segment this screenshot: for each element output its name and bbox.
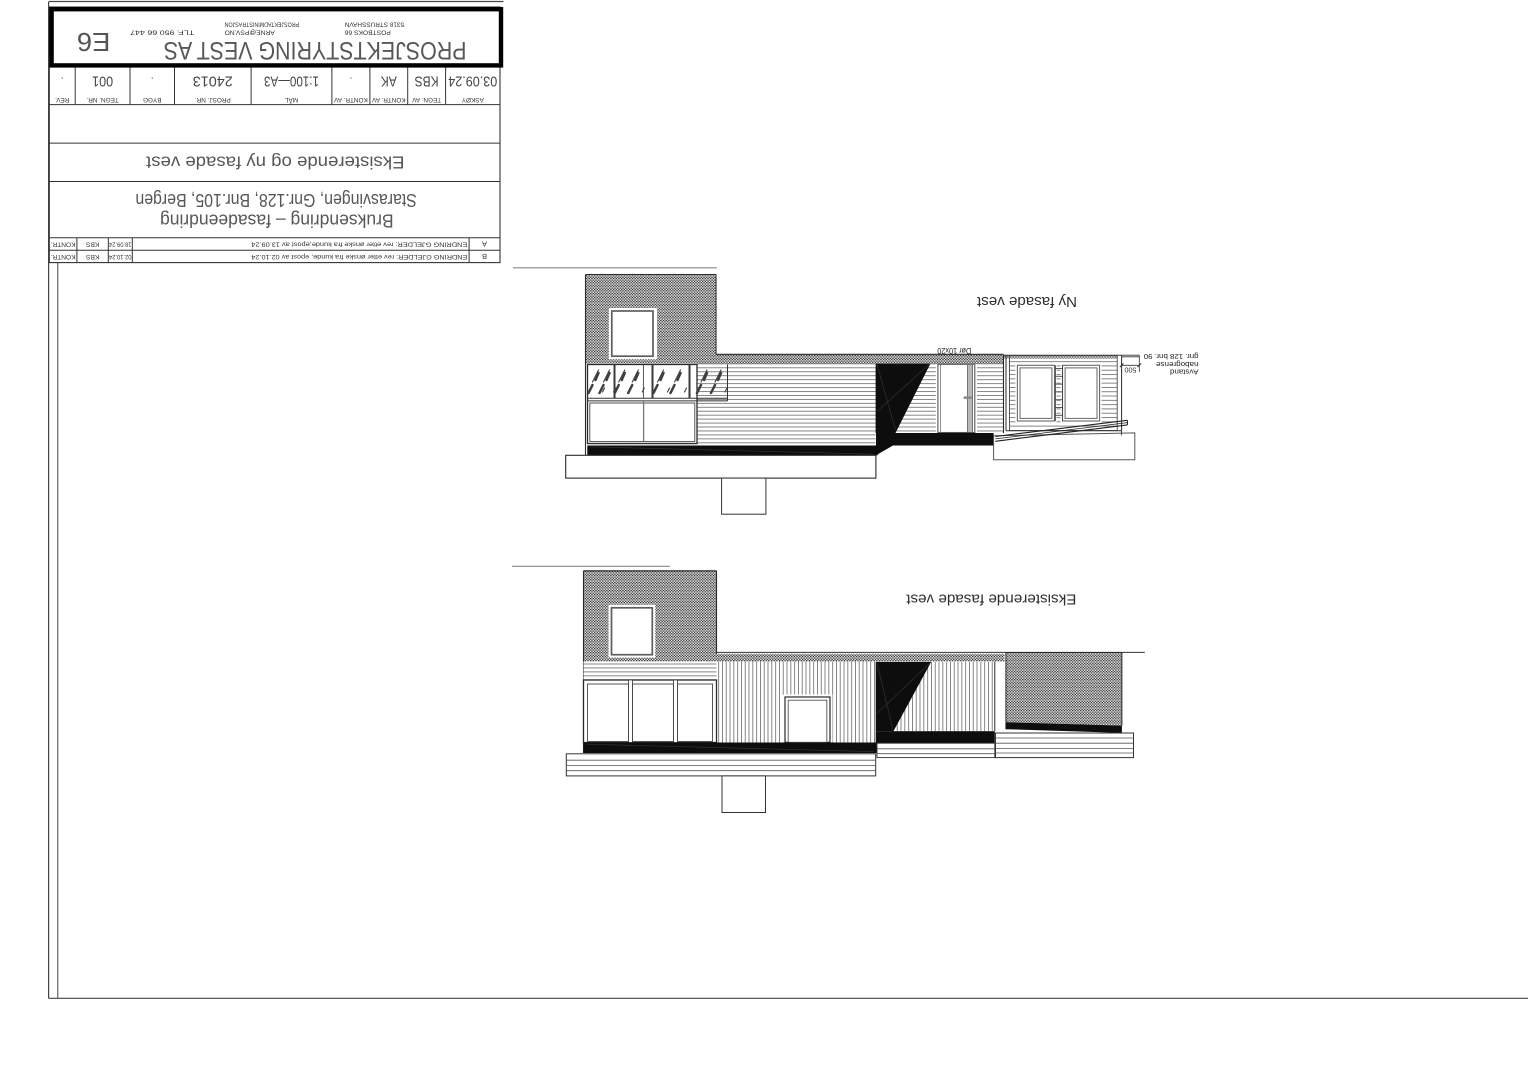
svg-text:Bruksendring – fasadeendring: Bruksendring – fasadeendring	[160, 210, 394, 230]
svg-text:KONTR.: KONTR.	[50, 253, 75, 260]
svg-text:Dør 10x20: Dør 10x20	[937, 346, 971, 355]
svg-text:B: B	[482, 252, 487, 261]
svg-text:Eksisterende og ny fasade vest: Eksisterende og ny fasade vest	[146, 153, 405, 173]
svg-text:gnr. 128 bnr. 90: gnr. 128 bnr. 90	[1144, 352, 1199, 361]
svg-text:5318 STRUSSHAVN: 5318 STRUSSHAVN	[345, 21, 404, 28]
svg-text:ASKØY: ASKØY	[461, 96, 484, 103]
svg-text:A: A	[482, 240, 487, 249]
svg-text:PROSJEKTSTYRING VEST AS: PROSJEKTSTYRING VEST AS	[164, 36, 467, 64]
svg-text:REV.: REV.	[55, 96, 70, 103]
svg-text:PROSJEKTADMINISTRASJON: PROSJEKTADMINISTRASJON	[225, 21, 300, 28]
svg-text:TEGN. AV: TEGN. AV	[411, 96, 441, 103]
svg-text:E6: E6	[77, 27, 111, 57]
svg-text:nabogrense: nabogrense	[1156, 360, 1199, 369]
svg-text:KBS: KBS	[85, 241, 99, 248]
svg-text:·: ·	[349, 73, 352, 84]
svg-text:ARNE@PSV.NO: ARNE@PSV.NO	[225, 28, 275, 35]
svg-text:MÅL: MÅL	[284, 96, 298, 105]
svg-text:ENDRING GJELDER: rev etter øns: ENDRING GJELDER: rev etter ønske fra kun…	[251, 241, 467, 248]
svg-text:BYGG: BYGG	[143, 96, 161, 103]
svg-text:POSTBOKS 66: POSTBOKS 66	[344, 28, 390, 35]
svg-text:18.09.24: 18.09.24	[109, 241, 132, 248]
svg-text:001: 001	[92, 73, 113, 89]
svg-text:KONTR. AV: KONTR. AV	[371, 96, 405, 103]
svg-text:TEGN. NR.: TEGN. NR.	[86, 96, 119, 103]
svg-text:Ny fasade vest: Ny fasade vest	[977, 293, 1077, 309]
svg-text:KONTR. AV: KONTR. AV	[333, 96, 367, 103]
svg-text:KBS: KBS	[85, 253, 99, 260]
svg-text:KONTR.: KONTR.	[50, 241, 75, 248]
svg-text:500: 500	[1124, 365, 1136, 372]
svg-text:·: ·	[61, 73, 64, 84]
svg-text:ENDRING GJELDER: rev etter øns: ENDRING GJELDER: rev etter ønske fra kun…	[251, 253, 467, 260]
svg-text:TLF. 950 66 447: TLF. 950 66 447	[130, 28, 194, 35]
svg-text:Avstand: Avstand	[1170, 368, 1199, 377]
svg-text:PROSJ. NR.: PROSJ. NR.	[195, 96, 231, 103]
svg-text:AK: AK	[381, 73, 397, 89]
svg-text:03.09.24: 03.09.24	[448, 73, 497, 89]
svg-text:24013: 24013	[193, 73, 233, 89]
svg-text:·: ·	[151, 73, 154, 84]
svg-text:Starasvingen, Gnr.128, Bnr.105: Starasvingen, Gnr.128, Bnr.105, Bergen	[135, 190, 416, 210]
svg-text:KBS: KBS	[415, 73, 439, 89]
svg-text:Eksisterende fasade vest: Eksisterende fasade vest	[905, 591, 1076, 608]
svg-text:02.10.24: 02.10.24	[109, 253, 132, 260]
svg-text:1:100—A3: 1:100—A3	[264, 73, 319, 89]
